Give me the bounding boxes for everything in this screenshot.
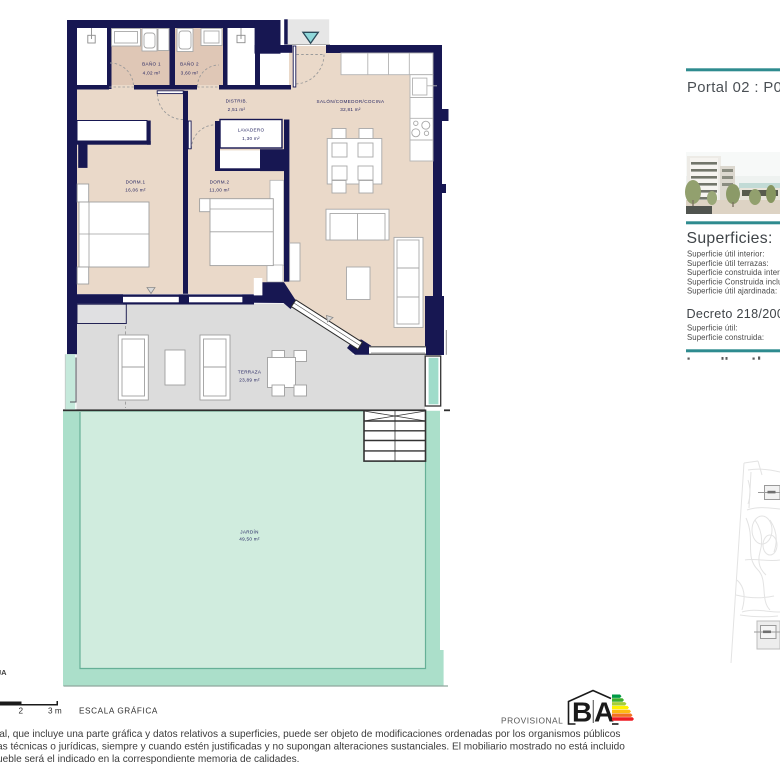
svg-text:Portal 02 : P02: Portal 02 : P02 [687, 80, 780, 96]
svg-text:2: 2 [19, 707, 24, 716]
svg-text:11,00 m²: 11,00 m² [209, 188, 229, 193]
svg-text:49,50 m²: 49,50 m² [239, 537, 260, 542]
svg-text:ial, que incluye una parte grá: ial, que incluye una parte gráfica y dat… [0, 729, 620, 740]
svg-text:as técnicas o jurídicas, siemp: as técnicas o jurídicas, siempre y cuand… [0, 742, 625, 753]
svg-text:B: B [572, 697, 592, 728]
svg-text:Superficie útil ajardinada:: Superficie útil ajardinada: [687, 287, 777, 296]
svg-text:4,02 m²: 4,02 m² [143, 71, 161, 76]
svg-text:ESCALA GRÁFICA: ESCALA GRÁFICA [79, 706, 158, 716]
svg-text:1,30 m²: 1,30 m² [242, 136, 260, 141]
svg-text:TERRAZA: TERRAZA [238, 370, 262, 375]
svg-text:Decreto 218/2005: Decreto 218/2005 [687, 307, 780, 321]
svg-text:Superficie Construida incluida: Superficie Construida incluida p.p [687, 277, 780, 286]
svg-text:PROVISIONAL: PROVISIONAL [501, 716, 563, 726]
svg-text:2,51 m²: 2,51 m² [228, 107, 246, 112]
svg-text:BAÑO 2: BAÑO 2 [180, 61, 199, 67]
svg-text:JARDÍN: JARDÍN [240, 529, 258, 535]
svg-text:SALÓN/COMEDOR/COCINA: SALÓN/COMEDOR/COCINA [317, 98, 386, 104]
svg-text:Superficie construida:: Superficie construida: [687, 333, 764, 342]
svg-text:32,81 m²: 32,81 m² [340, 107, 361, 112]
svg-text:DORM.2: DORM.2 [210, 180, 230, 185]
svg-text:ueble será el indicado en la c: ueble será el indicado en la correspondi… [0, 754, 299, 765]
svg-text:JA: JA [0, 668, 7, 677]
svg-text:Superficies:: Superficies: [687, 230, 773, 247]
svg-text:23,89 m²: 23,89 m² [239, 378, 260, 383]
svg-text:Superficie útil interior:: Superficie útil interior: [687, 250, 764, 259]
svg-text:DORM.1: DORM.1 [126, 180, 146, 185]
svg-text:DISTRIB.: DISTRIB. [226, 99, 248, 104]
svg-text:LAVADERO: LAVADERO [238, 128, 265, 133]
svg-text:3 m: 3 m [48, 707, 62, 716]
svg-text:Superficie útil:: Superficie útil: [687, 324, 738, 333]
svg-text:16,06 m²: 16,06 m² [125, 188, 146, 193]
svg-text:Superficie construida interior: Superficie construida interior: [687, 268, 780, 277]
svg-text:BAÑO 1: BAÑO 1 [142, 61, 161, 67]
svg-text:3,60 m²: 3,60 m² [181, 71, 199, 76]
svg-text:Superficie útil terrazas:: Superficie útil terrazas: [687, 259, 769, 268]
svg-text:A: A [594, 697, 614, 728]
